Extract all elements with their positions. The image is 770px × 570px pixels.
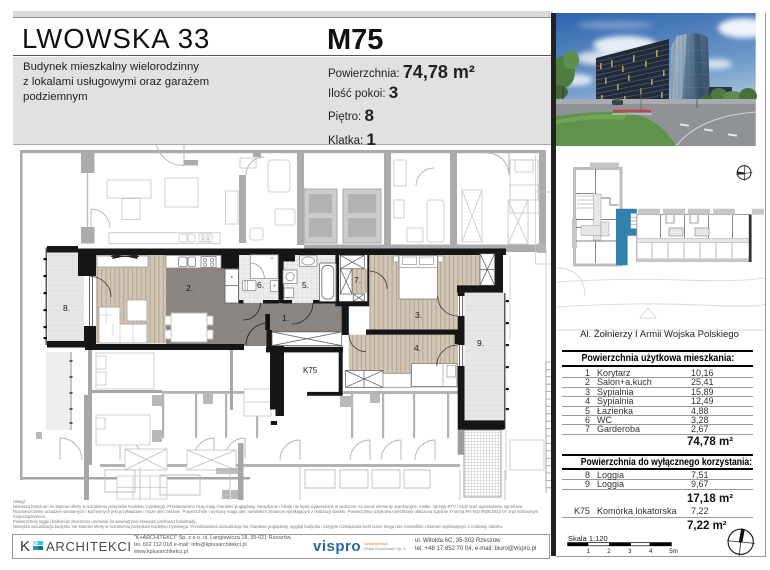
svg-text:8.: 8.: [63, 303, 70, 313]
svg-text:9.: 9.: [477, 338, 484, 348]
svg-text:2.: 2.: [186, 283, 193, 293]
svg-text:K75: K75: [303, 366, 318, 375]
svg-text:5.: 5.: [302, 280, 309, 290]
svg-text:7.: 7.: [354, 275, 361, 285]
svg-text:4.: 4.: [414, 343, 421, 353]
svg-text:3.: 3.: [415, 310, 422, 320]
svg-text:1.: 1.: [282, 313, 289, 323]
svg-text:6.: 6.: [257, 280, 264, 290]
